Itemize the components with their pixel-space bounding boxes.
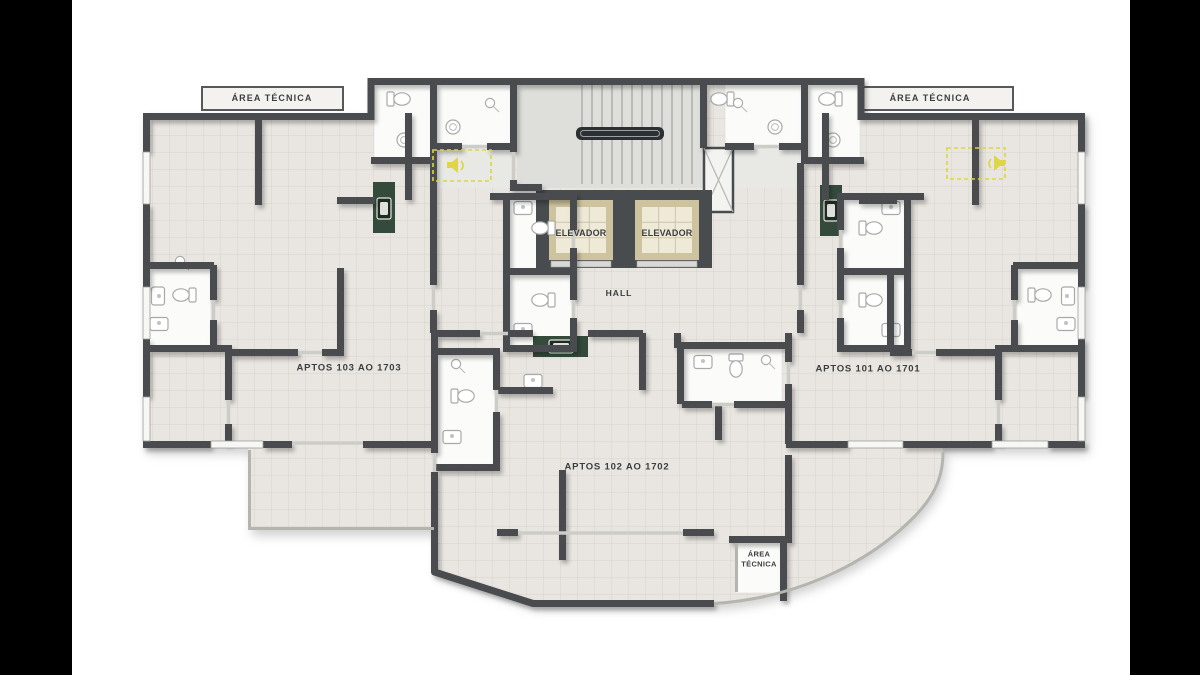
- elevator-left-door-sill: [551, 261, 611, 267]
- elevator-right-label: ELEVADOR: [642, 228, 693, 238]
- area-tecnica-bottom-line1: ÁREA: [748, 549, 770, 558]
- hall-label: HALL: [606, 288, 633, 298]
- area-tecnica-bottom-line2: TÉCNICA: [741, 559, 776, 568]
- floor-plan-screenshot: ÁREA TÉCNICA ÁREA TÉCNICA ELEVADOR ELEVA…: [0, 0, 1200, 675]
- area-tecnica-bottom-label: ÁREA TÉCNICA: [729, 549, 789, 569]
- elevator-left-label: ELEVADOR: [556, 228, 607, 238]
- area-tecnica-top-right-label: ÁREA TÉCNICA: [890, 93, 971, 103]
- stair-handrail: [576, 127, 664, 140]
- area-tecnica-top-left-label: ÁREA TÉCNICA: [232, 93, 313, 103]
- apartment-right-label: APTOS 101 AO 1701: [816, 364, 921, 375]
- elevator-right-door-sill: [637, 261, 697, 267]
- left-vestibule-floor: [434, 149, 513, 188]
- apartment-left-label: APTOS 103 AO 1703: [297, 363, 402, 374]
- apartment-bottom-label: APTOS 102 AO 1702: [565, 462, 670, 473]
- floor-plan-drawing: [0, 0, 1200, 675]
- right-vestibule-floor: [733, 149, 804, 188]
